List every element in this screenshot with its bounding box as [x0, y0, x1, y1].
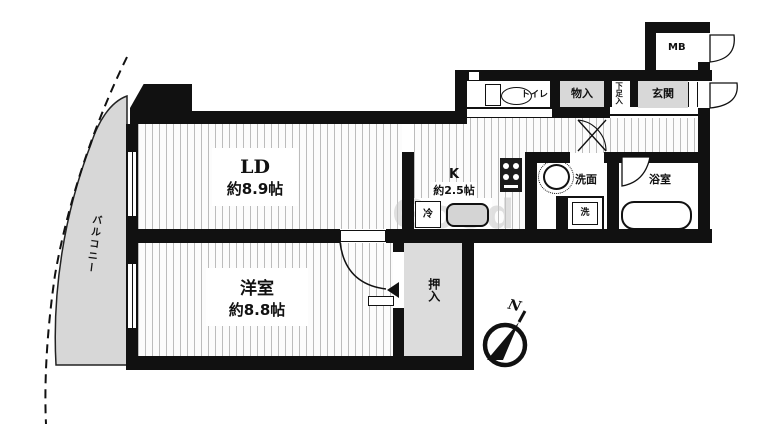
entrance-step-line	[610, 114, 698, 116]
wall-segment	[550, 81, 560, 107]
wall-segment	[698, 108, 710, 243]
compass-needle-tail	[519, 311, 525, 322]
wall-segment	[630, 81, 638, 107]
wall-segment	[698, 62, 710, 81]
washer-pan-icon: 洗	[566, 196, 604, 231]
wall-segment	[525, 163, 537, 243]
entrance-door-swing	[710, 83, 737, 108]
closet-slider-leaf	[368, 296, 394, 306]
meter-box-label: MB	[668, 42, 686, 54]
wall-segment	[604, 152, 698, 163]
wall-segment	[455, 70, 712, 81]
wall-segment	[126, 356, 474, 370]
floor-plan: Good 冷 洗	[0, 0, 759, 431]
wall-segment	[604, 81, 612, 107]
stove-icon	[500, 158, 522, 192]
washer-label: 洗	[580, 208, 589, 218]
wall-corner-block	[130, 84, 192, 124]
mb-door-swing	[710, 35, 734, 62]
refrigerator-space-icon: 冷	[415, 201, 441, 228]
bedroom-label-box: 洋室 約8.8帖	[206, 268, 308, 326]
ld-room-name: LD	[240, 156, 270, 178]
wall-segment	[607, 163, 619, 243]
bedroom-room-name: 洋室	[240, 274, 274, 299]
ld-window	[126, 152, 138, 216]
ld-label-box: LD 約8.9帖	[212, 148, 298, 206]
washbasin-icon	[543, 164, 570, 190]
burner-icon	[513, 163, 519, 169]
compass-north-label: N	[506, 297, 522, 316]
burner-icon	[503, 163, 509, 169]
shoe-cabinet-label: 下足入	[614, 82, 623, 105]
kitchen-room-name: K	[449, 167, 459, 182]
burner-icon	[503, 174, 509, 180]
bedroom-window	[126, 264, 138, 328]
grill-slot-icon	[504, 185, 518, 188]
kitchen-sink-icon	[446, 203, 489, 227]
washroom-label: 洗面	[575, 174, 597, 187]
balcony-label: バルコニー	[78, 214, 102, 315]
wall-segment	[190, 111, 467, 124]
bedroom-room-size: 約8.8帖	[229, 299, 286, 320]
compass-needle-icon	[487, 322, 519, 360]
refrigerator-label: 冷	[423, 209, 433, 221]
toilet-step	[467, 109, 552, 117]
bathtub-icon	[621, 201, 692, 230]
entrance-label: 玄関	[652, 88, 674, 101]
window-glass-line	[132, 152, 133, 216]
burner-icon	[513, 174, 519, 180]
storage-label: 物入	[571, 88, 593, 101]
wall-segment	[126, 124, 138, 152]
wall-segment	[462, 243, 474, 356]
toilet-tank-icon	[485, 84, 501, 106]
wall-segment	[126, 229, 340, 243]
toilet-label: トイレ	[521, 90, 548, 100]
wall-segment	[386, 229, 712, 243]
ld-room-size: 約8.9帖	[227, 178, 284, 199]
kitchen-room-size: 約2.5帖	[431, 182, 477, 198]
wall-segment	[645, 22, 710, 33]
bathroom-label: 浴室	[649, 174, 671, 187]
wall-segment	[556, 196, 566, 243]
window-glass-line	[132, 264, 133, 328]
bedroom-door-leaf	[340, 230, 386, 242]
washer-pan-inner: 洗	[572, 202, 598, 225]
front-door-opening	[688, 82, 698, 107]
kitchen-label-box: K 約2.5帖	[416, 165, 492, 199]
wall-niche	[469, 72, 479, 80]
closet-label: 押入	[426, 278, 440, 302]
wall-segment	[393, 308, 404, 356]
wall-segment	[402, 152, 414, 229]
compass-circle	[485, 325, 525, 365]
wall-segment	[393, 243, 404, 252]
